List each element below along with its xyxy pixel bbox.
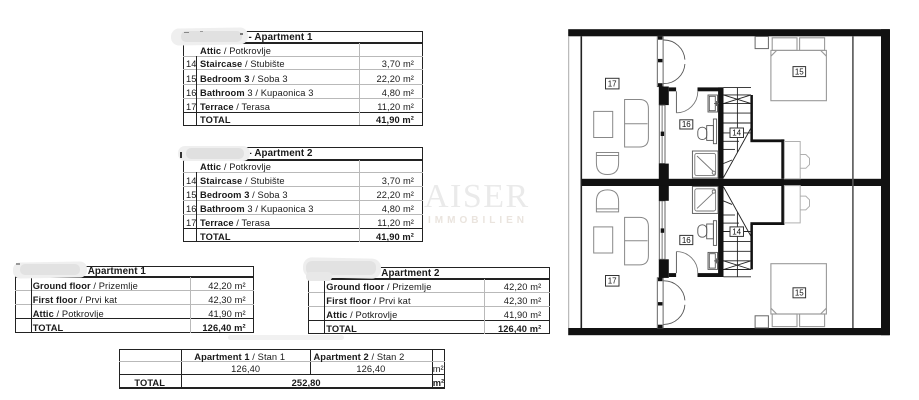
svg-text:17: 17 <box>608 277 617 286</box>
svg-text:17: 17 <box>608 79 617 88</box>
svg-text:14: 14 <box>732 129 741 138</box>
svg-text:15: 15 <box>795 289 804 298</box>
svg-text:16: 16 <box>682 236 691 245</box>
svg-text:15: 15 <box>795 68 804 77</box>
svg-text:16: 16 <box>682 120 691 129</box>
svg-text:14: 14 <box>732 227 741 236</box>
